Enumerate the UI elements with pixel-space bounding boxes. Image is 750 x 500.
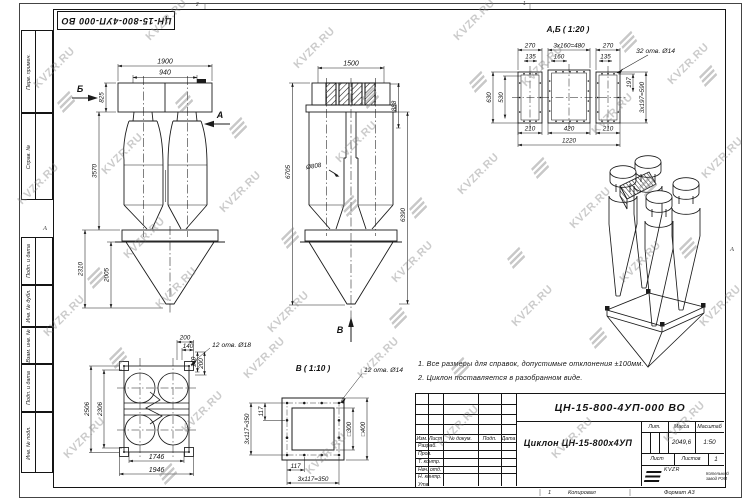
- dim-117-bottom: 117: [291, 463, 302, 470]
- dim-270-2: 270: [602, 43, 614, 50]
- dim-117-left: 117: [258, 406, 265, 417]
- flange-b-labels: В ( 1:10 ) 12 отв. Ø14 3х117=350 117 117…: [244, 364, 403, 483]
- view-arrow-a: А: [216, 110, 224, 120]
- dim-135-1: 135: [525, 54, 536, 61]
- dim-1946: 1946: [149, 467, 165, 474]
- view-arrow-v: В: [337, 325, 344, 335]
- flange-ab-labels: А,Б ( 1:20 ) 32 отв. Ø14 270 3х160=480 2…: [486, 25, 675, 145]
- flange-b-holes: 12 отв. Ø14: [364, 367, 403, 374]
- dim-825: 825: [99, 92, 106, 103]
- drawing-sheet: ЦН-15-800-4УП-000 ВО Перв. примен. Справ…: [0, 0, 750, 500]
- dim-200-right: 200: [198, 358, 205, 370]
- dim-888: 888: [391, 100, 398, 111]
- dim-2506: 2506: [84, 402, 91, 418]
- dim-6390: 6390: [400, 208, 407, 223]
- flange-b-bolt-holes: [286, 402, 341, 457]
- dim-2310: 2310: [78, 262, 85, 278]
- zone-ticks: [205, 3, 630, 496]
- dim-dia-808: Ø808: [305, 162, 323, 172]
- dim-1746: 1746: [149, 454, 165, 461]
- dim-1220: 1220: [562, 138, 577, 145]
- dim-sq300: □300: [346, 421, 353, 436]
- dim-3x117-bottom: 3х117=350: [298, 476, 329, 483]
- dim-940: 940: [159, 70, 171, 77]
- dim-160: 160: [554, 54, 565, 61]
- isometric-view: [605, 156, 706, 367]
- flange-ab-holes: 32 отв. Ø14: [636, 48, 675, 55]
- plan-view-labels: 200 140 12 отв. Ø18 140 200 2506 2306 17…: [84, 335, 251, 474]
- dim-3570: 3570: [92, 164, 99, 179]
- dim-210-1: 210: [524, 126, 536, 133]
- dim-140-right: 140: [191, 356, 198, 367]
- plan-holes: 12 отв. Ø18: [212, 342, 251, 349]
- dim-1500: 1500: [343, 61, 359, 68]
- view-arrow-b: Б: [77, 84, 84, 94]
- dim-420: 420: [564, 126, 575, 133]
- dim-140-top: 140: [183, 343, 194, 350]
- dim-1900: 1900: [157, 59, 173, 66]
- dim-sq400: □400: [360, 421, 367, 436]
- dim-530: 530: [498, 92, 505, 103]
- dim-6705: 6705: [285, 165, 292, 180]
- dim-630: 630: [486, 92, 493, 103]
- dim-210-2: 210: [602, 126, 614, 133]
- dim-2306: 2306: [97, 402, 104, 418]
- flange-b-title: В ( 1:10 ): [296, 364, 331, 373]
- dim-3x197: 3х197=590: [639, 81, 646, 113]
- dim-135-2: 135: [600, 54, 611, 61]
- front-view: [72, 64, 230, 314]
- dim-2005: 2005: [104, 268, 111, 284]
- dim-3x160: 3х160=480: [553, 43, 585, 50]
- dim-270-1: 270: [524, 43, 536, 50]
- dim-197: 197: [626, 77, 633, 88]
- dim-3x117-left: 3х117=350: [244, 413, 251, 444]
- dim-200-top: 200: [179, 335, 191, 342]
- cad-linework: 1900 940 825 3570 2310 2005 Б А: [0, 0, 750, 500]
- flange-ab-title: А,Б ( 1:20 ): [546, 25, 590, 34]
